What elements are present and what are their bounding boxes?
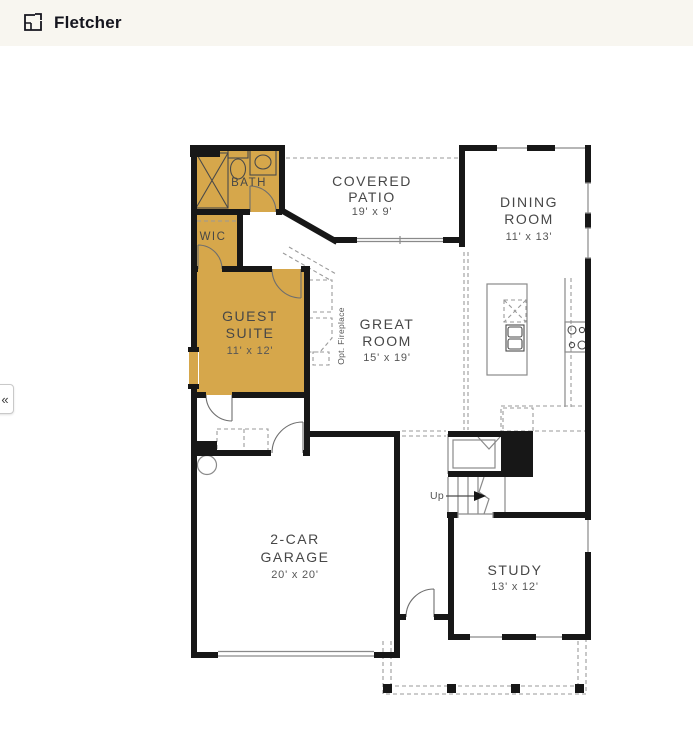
patio-dims: 19' x 9' xyxy=(352,206,393,218)
great-dims: 15' x 19' xyxy=(363,352,410,364)
patio-label-1: COVERED xyxy=(332,173,412,189)
kitchen-greatroom-divider xyxy=(464,252,468,430)
patio-label-2: PATIO xyxy=(348,189,395,205)
guest-dims: 11' x 12' xyxy=(227,345,274,357)
garage-entry-door xyxy=(272,422,303,453)
optional-fireplace xyxy=(309,280,332,365)
fireplace-label: Opt. Fireplace xyxy=(336,307,346,365)
floor-plan: BATH WIC GUEST SUITE 11' x 12' COVERED P… xyxy=(0,0,693,743)
guest-window xyxy=(188,347,199,389)
garage-label-1: 2-CAR xyxy=(270,531,320,547)
under-stair-closet xyxy=(448,434,500,474)
dining-label-2: ROOM xyxy=(504,211,554,227)
stairs xyxy=(446,477,505,514)
wall-corner-garage xyxy=(191,441,217,453)
garage-label-2: GARAGE xyxy=(261,549,330,565)
wall-corner-bath xyxy=(190,145,220,157)
guest-label-1: GUEST xyxy=(222,308,278,324)
wall-block xyxy=(501,431,533,477)
front-entry-door xyxy=(406,589,434,617)
refrigerator xyxy=(503,408,533,434)
dining-dims: 11' x 13' xyxy=(506,231,553,243)
study-dims: 13' x 12' xyxy=(491,581,538,593)
front-porch xyxy=(383,638,586,694)
hall-cased-opening xyxy=(402,431,446,436)
cooktop xyxy=(565,322,588,352)
dining-label-1: DINING xyxy=(500,194,558,210)
hall-door xyxy=(206,395,232,421)
water-heater xyxy=(198,456,217,475)
garage-dims: 20' x 20' xyxy=(271,569,318,581)
wic-label: WIC xyxy=(200,231,227,243)
mudroom-bench xyxy=(217,429,268,451)
kitchen-island xyxy=(487,284,527,375)
bath-label: BATH xyxy=(231,177,267,189)
great-label-2: ROOM xyxy=(362,333,412,349)
guest-label-2: SUITE xyxy=(226,325,275,341)
great-label-1: GREAT xyxy=(360,316,415,332)
kitchen-counter-bottom xyxy=(501,406,588,431)
stairs-up-label: Up xyxy=(430,490,444,502)
study-label: STUDY xyxy=(488,562,543,578)
